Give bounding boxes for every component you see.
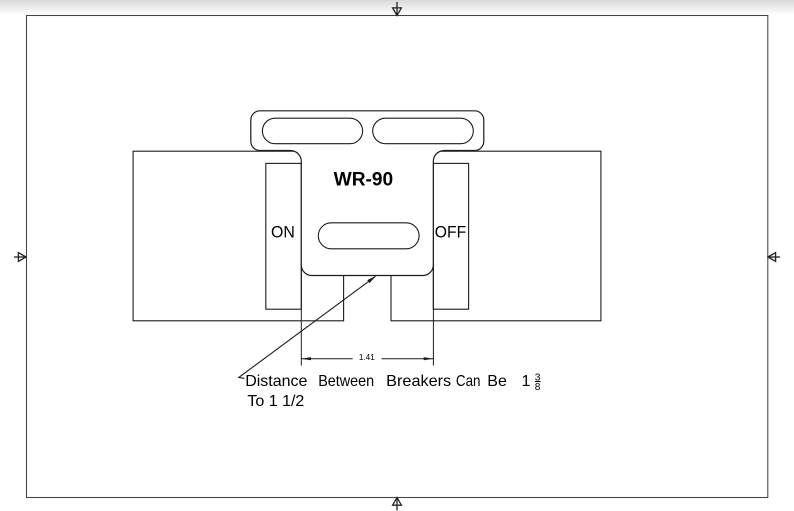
svg-text:ON: ON <box>271 223 295 242</box>
svg-text:1.41: 1.41 <box>359 353 375 362</box>
svg-text:8: 8 <box>535 382 541 393</box>
svg-text:DistanceBetweenBreakersCanBe1: DistanceBetweenBreakersCanBe1 <box>245 373 530 390</box>
svg-text:To 1 1/2: To 1 1/2 <box>247 393 304 410</box>
svg-text:OFF: OFF <box>435 222 466 241</box>
svg-text:WR-90: WR-90 <box>334 170 394 191</box>
